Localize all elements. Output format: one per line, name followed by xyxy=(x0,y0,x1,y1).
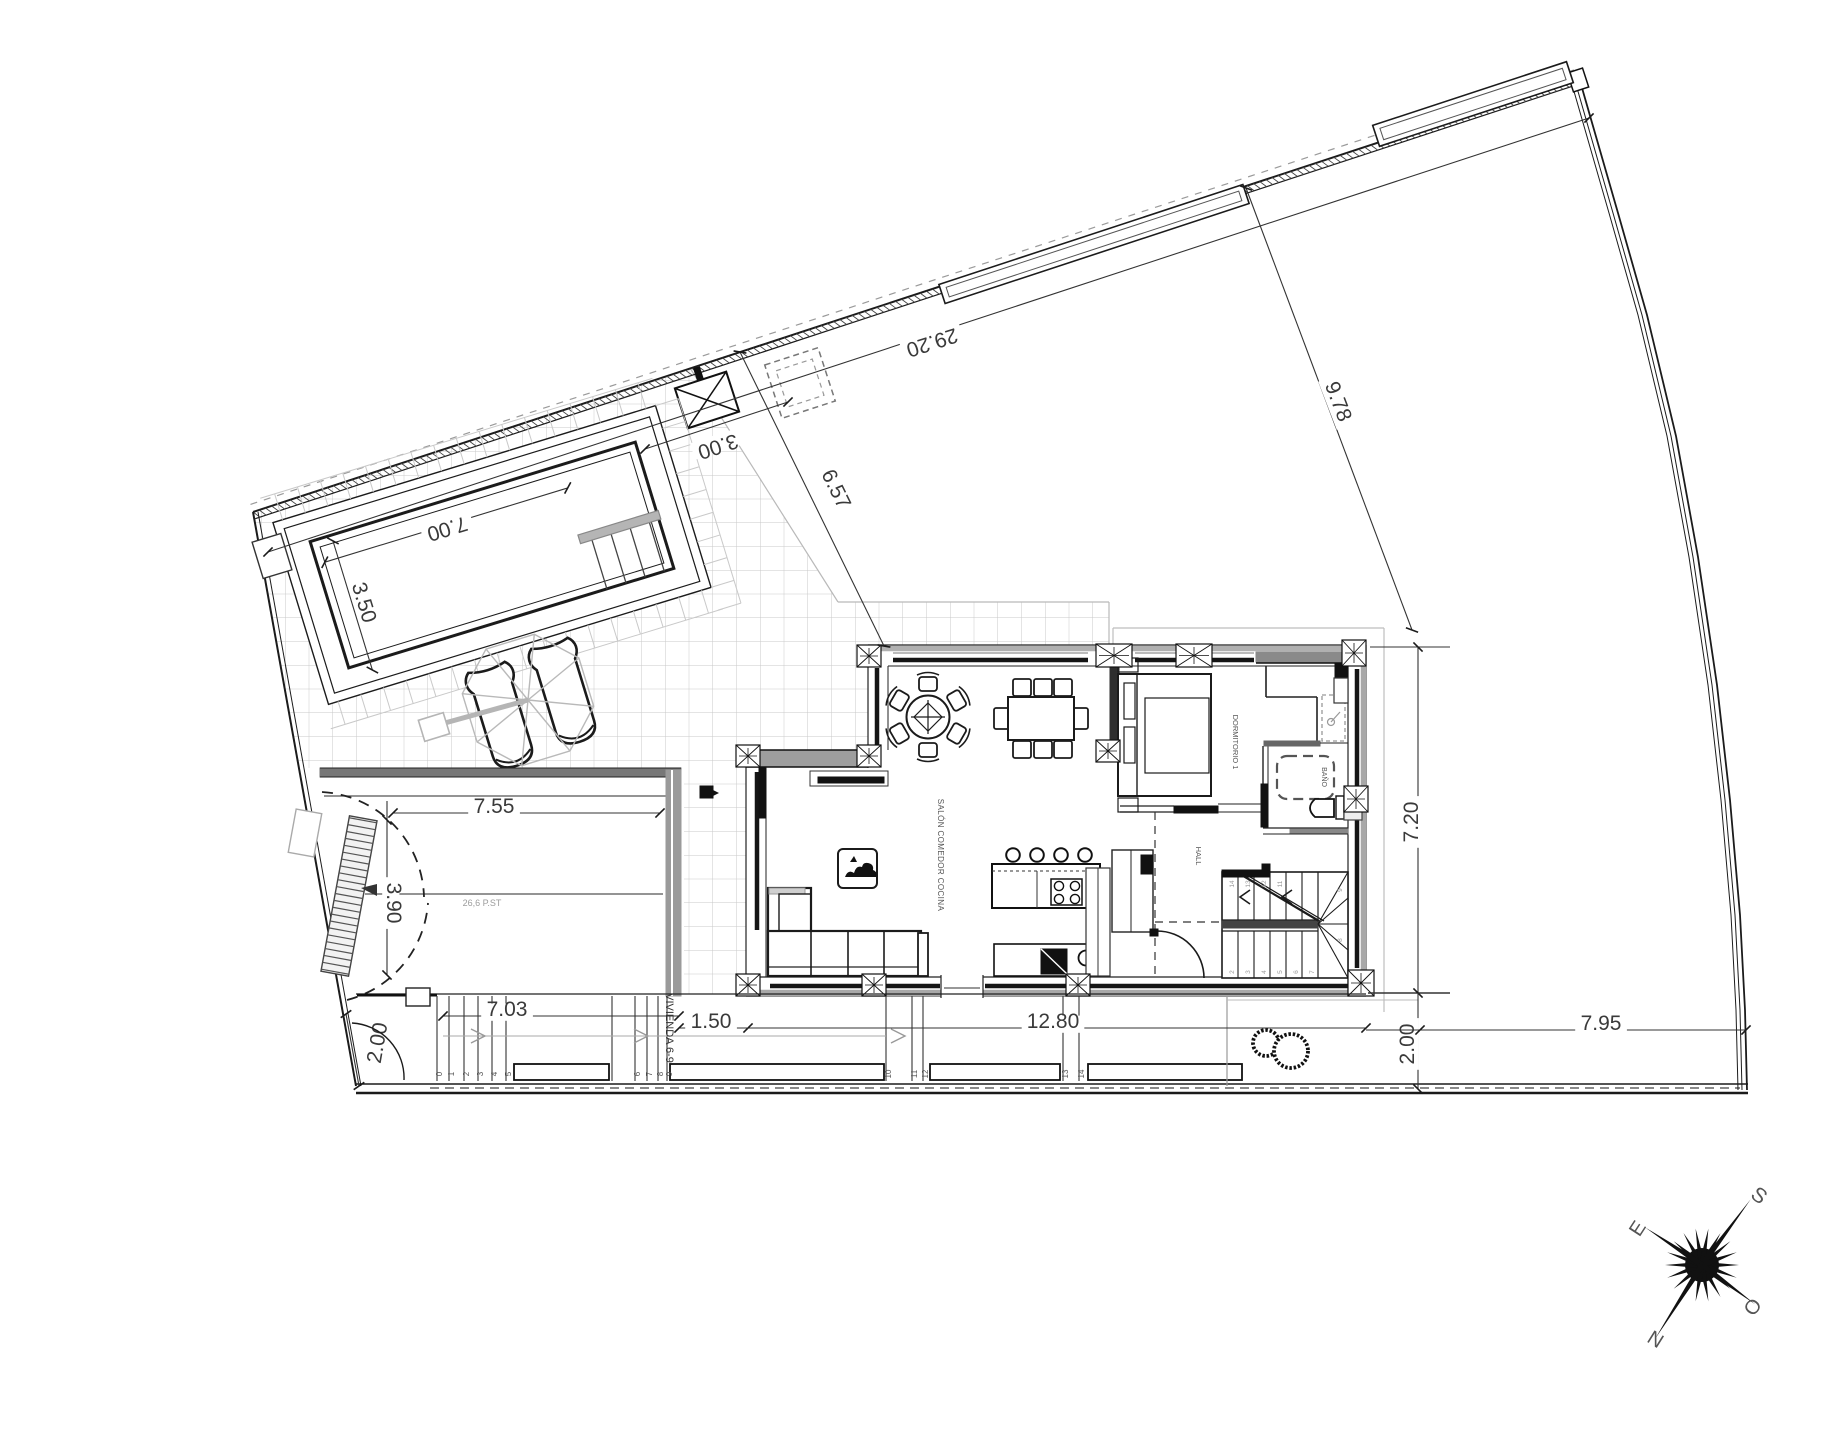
svg-text:13: 13 xyxy=(1245,880,1252,888)
svg-text:14: 14 xyxy=(1229,880,1236,888)
svg-text:2: 2 xyxy=(462,1071,471,1076)
svg-text:7: 7 xyxy=(645,1071,654,1076)
svg-text:14: 14 xyxy=(1077,1069,1086,1078)
svg-text:7: 7 xyxy=(1309,970,1316,974)
svg-text:DORMITORIO 1: DORMITORIO 1 xyxy=(1231,715,1240,770)
svg-text:6: 6 xyxy=(633,1071,642,1076)
svg-text:HALL: HALL xyxy=(1194,847,1203,866)
svg-text:26,6 P.ST: 26,6 P.ST xyxy=(463,898,502,908)
svg-text:1: 1 xyxy=(447,1071,456,1076)
svg-text:6: 6 xyxy=(1293,970,1300,974)
svg-text:SALÓN COMEDOR COCINA: SALÓN COMEDOR COCINA xyxy=(936,799,945,912)
svg-text:11: 11 xyxy=(910,1069,919,1078)
svg-text:7.95: 7.95 xyxy=(1581,1012,1622,1035)
svg-text:3: 3 xyxy=(1245,970,1252,974)
svg-text:VIVIENDA 6-9: VIVIENDA 6-9 xyxy=(663,993,675,1063)
svg-text:7.03: 7.03 xyxy=(487,998,528,1021)
svg-text:12: 12 xyxy=(1261,880,1268,888)
svg-text:5: 5 xyxy=(1277,970,1284,974)
svg-text:7.55: 7.55 xyxy=(474,795,515,818)
svg-text:BAÑO: BAÑO xyxy=(1320,767,1329,787)
svg-text:11: 11 xyxy=(1277,880,1284,887)
svg-text:2: 2 xyxy=(1229,970,1236,974)
svg-text:8: 8 xyxy=(1337,938,1344,942)
svg-text:5: 5 xyxy=(504,1071,513,1076)
svg-text:13: 13 xyxy=(1061,1069,1070,1078)
svg-text:9: 9 xyxy=(1337,888,1344,892)
svg-text:4: 4 xyxy=(1261,970,1268,974)
svg-text:3.90: 3.90 xyxy=(382,883,405,924)
svg-text:8: 8 xyxy=(656,1071,665,1076)
svg-text:0: 0 xyxy=(435,1071,444,1076)
svg-text:3: 3 xyxy=(476,1071,485,1076)
svg-text:1.50: 1.50 xyxy=(691,1010,732,1033)
svg-text:12.80: 12.80 xyxy=(1027,1010,1080,1033)
svg-text:10: 10 xyxy=(884,1069,893,1078)
svg-text:4: 4 xyxy=(490,1071,499,1076)
svg-text:12: 12 xyxy=(921,1069,930,1078)
svg-text:9: 9 xyxy=(665,1071,674,1076)
svg-text:7.20: 7.20 xyxy=(1400,802,1423,843)
